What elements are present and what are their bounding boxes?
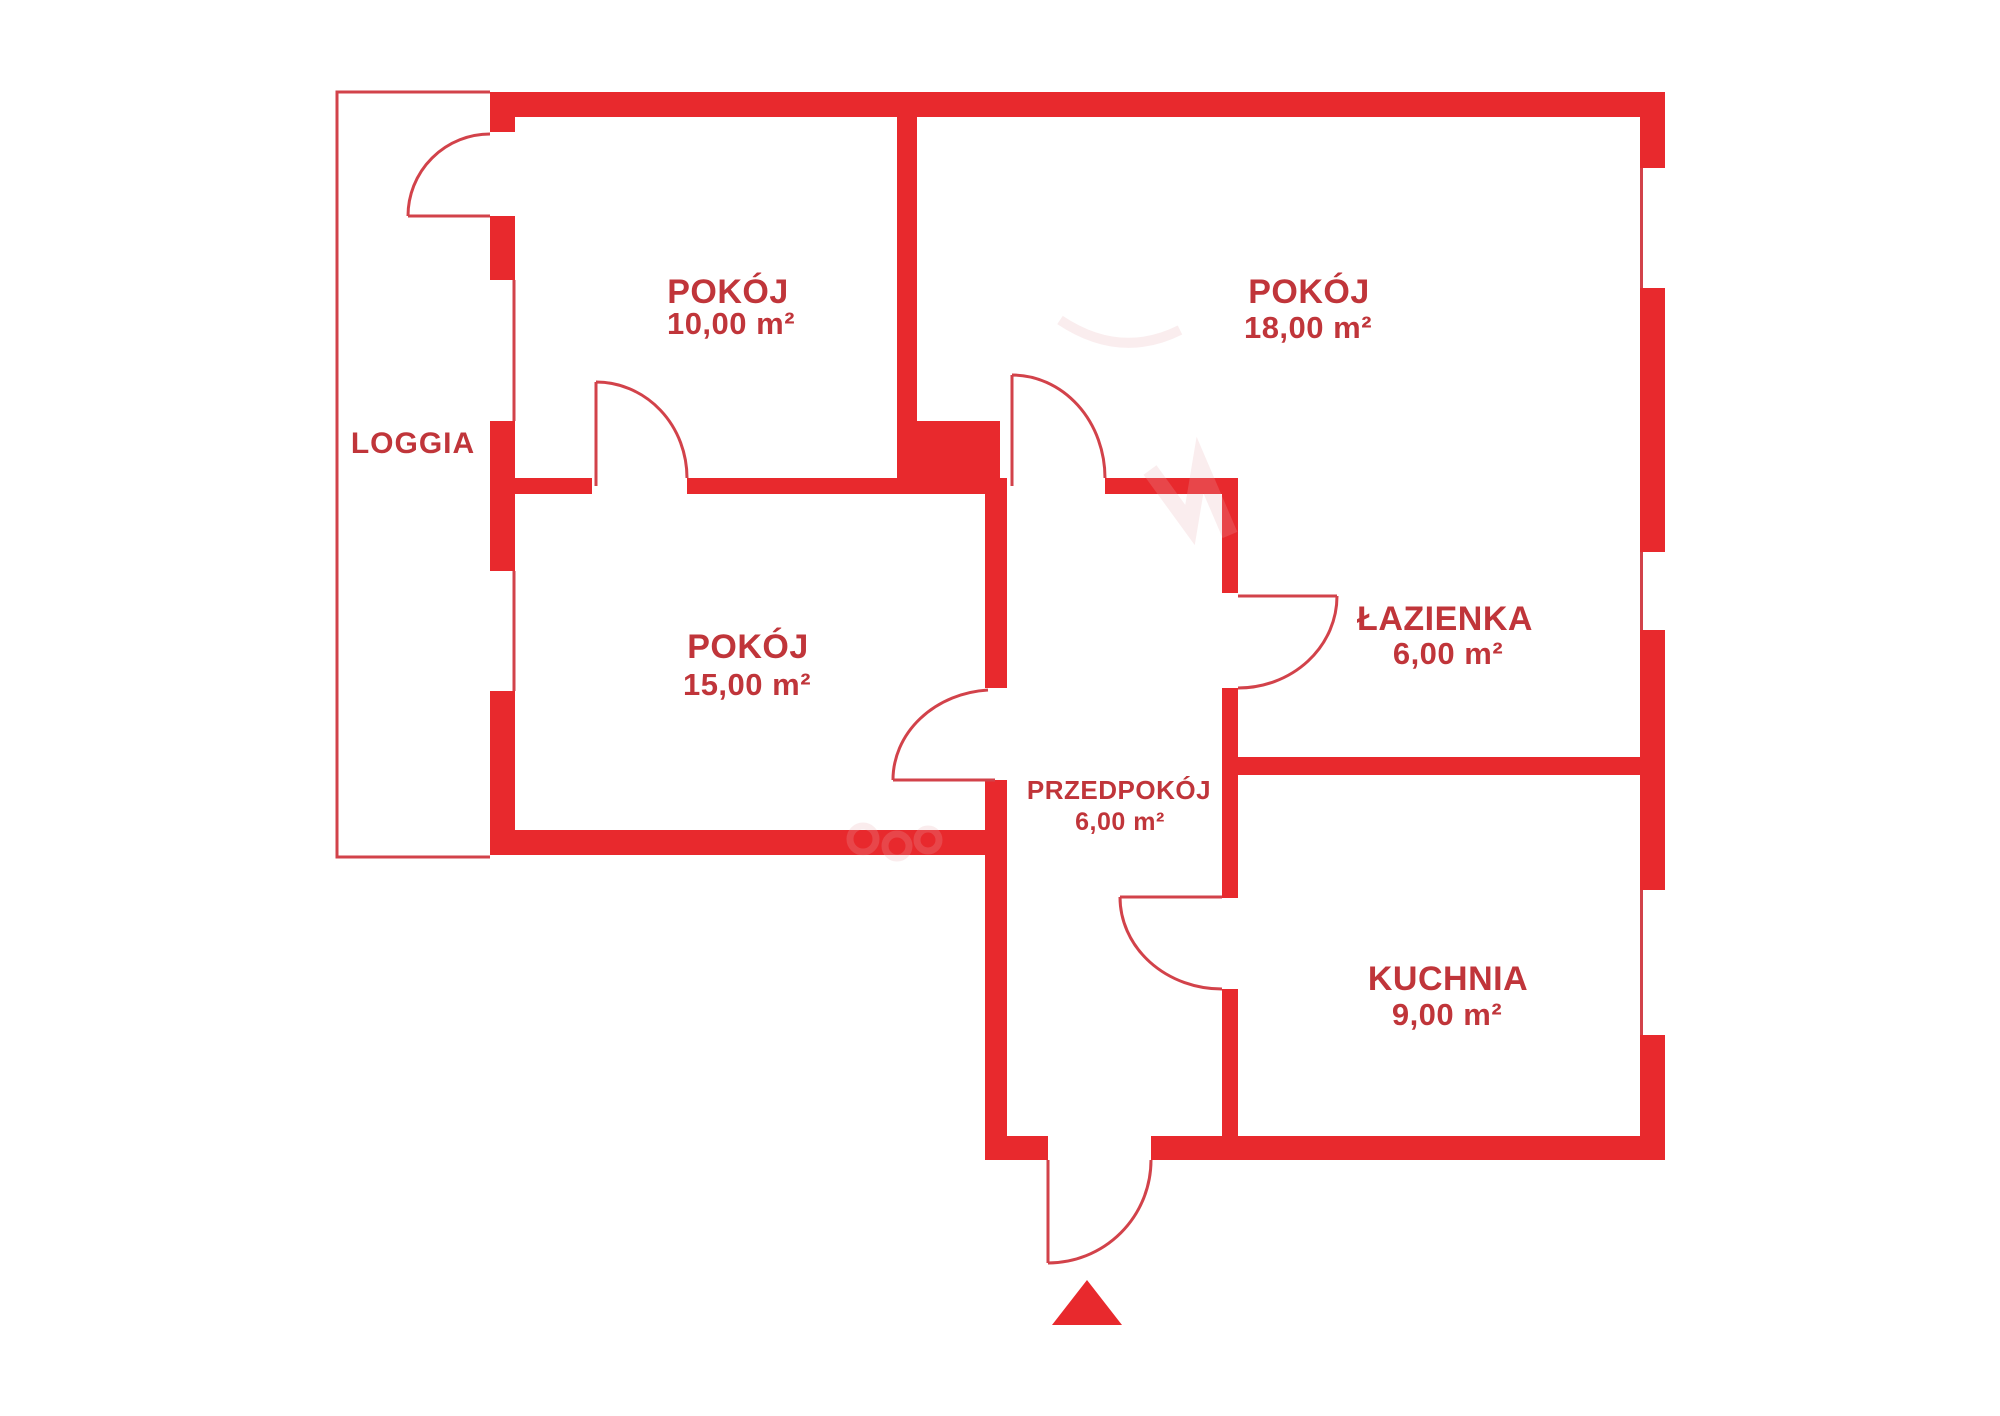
- wall-segment: [1151, 1136, 1665, 1160]
- wall-segment: [1222, 688, 1238, 898]
- door-pokoj-10: [596, 382, 687, 486]
- room-area-przedpokoj: 6,00 m²: [1075, 808, 1165, 836]
- wall-segment: [490, 216, 515, 280]
- loggia-outline: [337, 92, 490, 857]
- wall-segment: [490, 92, 515, 132]
- wall-segment: [985, 494, 1007, 688]
- room-label-pokoj-15: POKÓJ: [687, 628, 809, 666]
- wall-segment: [1640, 288, 1665, 552]
- wall-segment: [985, 780, 1007, 1160]
- floor-plan-canvas: LOGGIA POKÓJ 10,00 m² POKÓJ 18,00 m² POK…: [0, 0, 2000, 1416]
- room-label-kuchnia: KUCHNIA: [1368, 960, 1528, 998]
- door-pokoj-18: [1012, 375, 1105, 486]
- wall-segment: [490, 421, 515, 571]
- room-label-przedpokoj: PRZEDPOKÓJ: [1027, 775, 1211, 805]
- room-area-pokoj-15: 15,00 m²: [683, 667, 811, 702]
- door-entrance: [1048, 1160, 1151, 1263]
- wall-segment: [490, 92, 1665, 117]
- room-area-lazienka: 6,00 m²: [1393, 636, 1503, 671]
- door-loggia: [408, 134, 490, 216]
- wall-segment: [1640, 92, 1665, 168]
- wall-segment: [1640, 630, 1665, 890]
- floor-plan-page: LOGGIA POKÓJ 10,00 m² POKÓJ 18,00 m² POK…: [0, 0, 2000, 1416]
- wall-segment: [897, 421, 1000, 494]
- room-label-lazienka: ŁAZIENKA: [1357, 600, 1533, 638]
- room-area-pokoj-18: 18,00 m²: [1244, 310, 1372, 345]
- wall-segment: [1222, 989, 1238, 1136]
- room-area-kuchnia: 9,00 m²: [1392, 997, 1502, 1032]
- entrance-arrow-icon: [1052, 1280, 1122, 1325]
- door-lazienka: [1238, 596, 1337, 688]
- room-area-pokoj-10: 10,00 m²: [667, 306, 795, 341]
- labels: LOGGIA POKÓJ 10,00 m² POKÓJ 18,00 m² POK…: [351, 273, 1533, 1032]
- wall-segment: [897, 117, 917, 421]
- wall-segment: [515, 478, 592, 494]
- room-label-loggia: LOGGIA: [351, 427, 475, 460]
- door-pokoj-15: [893, 690, 995, 780]
- doors: [408, 134, 1337, 1263]
- room-label-pokoj-18: POKÓJ: [1248, 273, 1370, 311]
- door-kuchnia: [1120, 897, 1222, 989]
- wall-segment: [1238, 757, 1640, 775]
